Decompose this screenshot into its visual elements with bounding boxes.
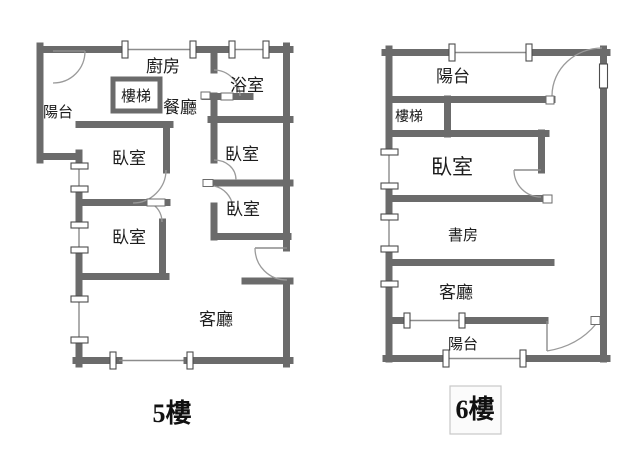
door-arc xyxy=(133,170,166,203)
floor-plan-6f: 陽台 樓梯 臥室 書房 客廳 陽台 6樓 xyxy=(381,44,608,434)
window-marker xyxy=(381,183,398,189)
room-label-stairs: 樓梯 xyxy=(121,88,151,105)
room-label-stairs: 樓梯 xyxy=(395,108,423,124)
window-marker xyxy=(229,41,235,58)
door-arc xyxy=(514,170,541,197)
window-marker xyxy=(71,163,88,169)
room-label-balcony: 陽台 xyxy=(43,104,73,121)
door-threshold xyxy=(546,96,554,104)
door-threshold xyxy=(147,199,165,206)
window-marker xyxy=(71,222,88,228)
room-label-bathroom: 浴室 xyxy=(230,76,264,95)
window-marker xyxy=(71,186,88,192)
window-marker xyxy=(71,337,88,343)
window-marker xyxy=(404,313,410,328)
door-threshold xyxy=(203,180,213,187)
window-marker xyxy=(190,41,196,58)
door-threshold xyxy=(201,92,210,99)
window-marker xyxy=(110,352,116,369)
room-label-living: 客廳 xyxy=(439,283,473,302)
window-marker xyxy=(381,214,398,220)
window-marker xyxy=(600,64,608,88)
window-marker xyxy=(459,313,465,328)
window-marker xyxy=(122,41,128,58)
window-marker xyxy=(381,149,398,155)
door-threshold xyxy=(543,195,552,203)
room-label-balcony-bottom: 陽台 xyxy=(448,336,478,353)
floor-plan-canvas: 廚房 樓梯 餐廳 浴室 陽台 臥室 臥室 臥室 臥室 客廳 5樓 xyxy=(0,0,640,461)
labels-6f: 陽台 樓梯 臥室 書房 客廳 陽台 xyxy=(395,67,478,353)
floor-title-6f: 6樓 xyxy=(455,394,494,424)
room-label-bedroom-left-bottom: 臥室 xyxy=(112,228,146,247)
window-marker xyxy=(71,296,88,302)
room-label-bedroom-mid-bottom: 臥室 xyxy=(226,200,260,219)
room-label-living: 客廳 xyxy=(199,310,233,329)
floor-plan-5f: 廚房 樓梯 餐廳 浴室 陽台 臥室 臥室 臥室 臥室 客廳 5樓 xyxy=(40,41,290,428)
window-marker xyxy=(526,44,532,61)
room-label-balcony-top: 陽台 xyxy=(436,67,470,86)
floor-plan-image: 廚房 樓梯 餐廳 浴室 陽台 臥室 臥室 臥室 臥室 客廳 5樓 xyxy=(0,0,640,461)
walls-6f xyxy=(385,49,607,359)
door-threshold xyxy=(591,317,600,325)
door-arc xyxy=(255,248,287,280)
window-marker xyxy=(263,41,269,58)
window-marker xyxy=(381,246,398,252)
window-marker xyxy=(71,247,88,253)
door-arc xyxy=(53,51,85,83)
room-label-bedroom-mid-top: 臥室 xyxy=(225,145,259,164)
floor-title-5f: 5樓 xyxy=(152,398,191,428)
room-label-bedroom-left-top: 臥室 xyxy=(112,149,146,168)
door-arc xyxy=(547,324,596,351)
room-label-bedroom: 臥室 xyxy=(431,156,473,179)
window-marker xyxy=(381,281,398,287)
window-marker xyxy=(520,350,526,367)
room-label-dining: 餐廳 xyxy=(163,98,197,117)
room-label-kitchen: 廚房 xyxy=(146,56,180,76)
window-marker xyxy=(187,352,193,369)
room-label-study: 書房 xyxy=(448,227,478,244)
window-marker xyxy=(449,44,455,61)
